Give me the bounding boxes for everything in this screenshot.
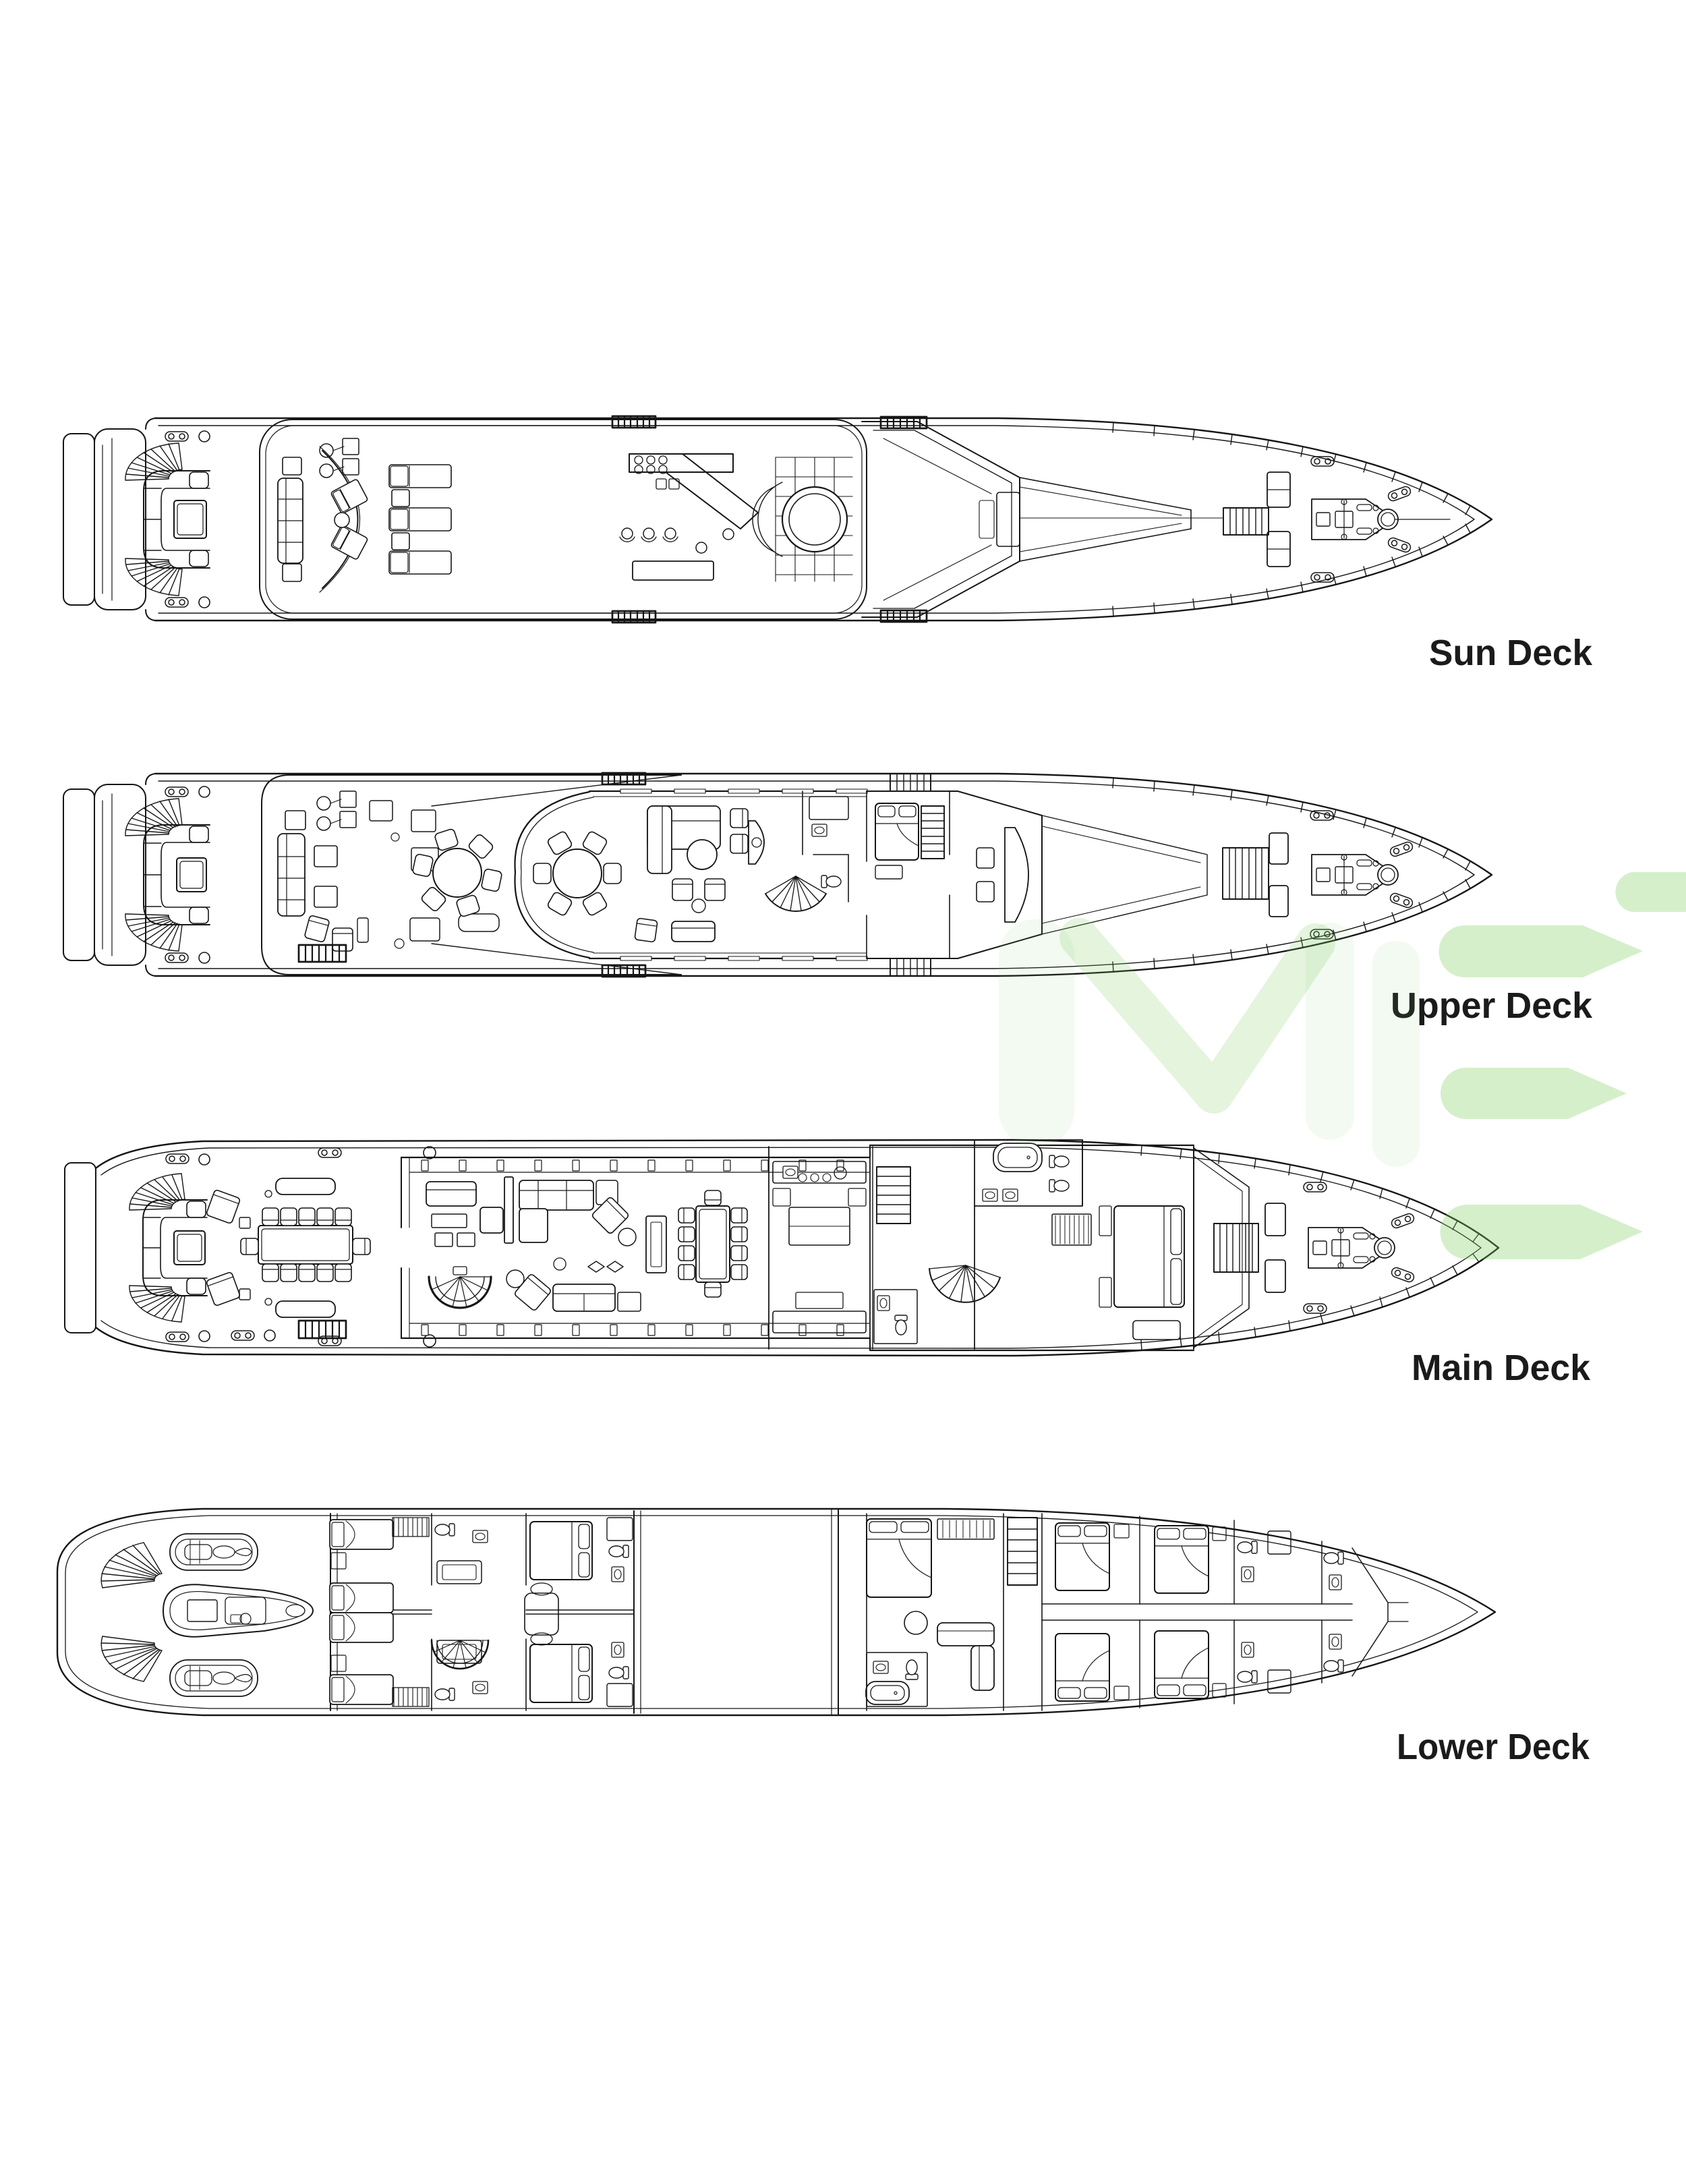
svg-text:Main Deck: Main Deck <box>1412 1348 1591 1388</box>
svg-text:Lower Deck: Lower Deck <box>1397 1727 1590 1767</box>
svg-text:Sun Deck: Sun Deck <box>1429 633 1593 673</box>
svg-text:Upper Deck: Upper Deck <box>1391 985 1593 1026</box>
